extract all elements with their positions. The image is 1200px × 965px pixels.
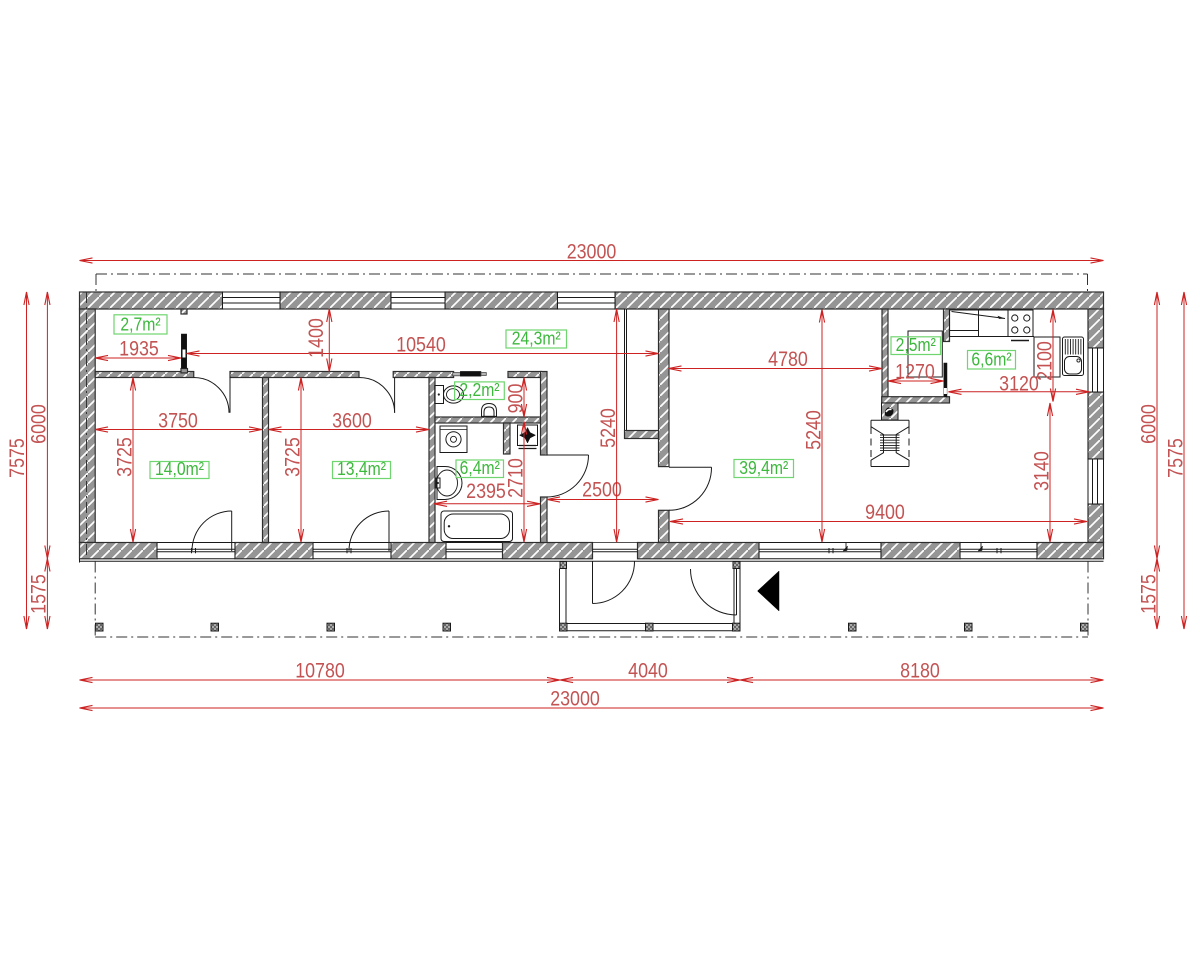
svg-text:23000: 23000 xyxy=(567,240,617,264)
svg-text:6000: 6000 xyxy=(1137,404,1161,444)
svg-text:6,4m²: 6,4m² xyxy=(460,457,500,479)
svg-text:3140: 3140 xyxy=(1030,451,1054,491)
svg-text:4780: 4780 xyxy=(768,348,808,372)
svg-text:13,4m²: 13,4m² xyxy=(337,458,386,480)
svg-text:8180: 8180 xyxy=(900,659,940,683)
svg-text:3725: 3725 xyxy=(113,437,137,477)
svg-text:6,6m²: 6,6m² xyxy=(971,348,1011,370)
svg-text:4040: 4040 xyxy=(628,659,668,683)
svg-text:3725: 3725 xyxy=(281,437,305,477)
svg-text:2,2m²: 2,2m² xyxy=(459,379,499,401)
svg-text:5240: 5240 xyxy=(597,408,621,448)
svg-text:6000: 6000 xyxy=(27,404,51,444)
svg-text:1935: 1935 xyxy=(119,337,159,361)
svg-text:2,7m²: 2,7m² xyxy=(120,313,160,335)
svg-text:2,5m²: 2,5m² xyxy=(896,334,936,356)
svg-text:7575: 7575 xyxy=(1164,438,1188,478)
svg-text:14,0m²: 14,0m² xyxy=(155,458,204,480)
svg-text:10780: 10780 xyxy=(295,659,345,683)
svg-text:23000: 23000 xyxy=(550,687,600,711)
svg-text:3600: 3600 xyxy=(332,409,372,433)
svg-text:10540: 10540 xyxy=(396,333,446,357)
svg-text:39,4m²: 39,4m² xyxy=(739,457,788,479)
svg-text:1270: 1270 xyxy=(895,360,935,384)
svg-text:5240: 5240 xyxy=(802,410,826,450)
svg-text:7575: 7575 xyxy=(6,438,30,478)
svg-text:2395: 2395 xyxy=(466,480,506,504)
svg-text:9400: 9400 xyxy=(865,501,905,525)
svg-text:1575: 1575 xyxy=(1137,574,1161,614)
svg-text:3750: 3750 xyxy=(158,409,198,433)
svg-text:1400: 1400 xyxy=(305,318,329,358)
svg-text:2710: 2710 xyxy=(504,458,528,498)
svg-text:24,3m²: 24,3m² xyxy=(512,327,561,349)
svg-text:1575: 1575 xyxy=(27,574,51,614)
svg-text:900: 900 xyxy=(504,384,528,414)
svg-text:2100: 2100 xyxy=(1033,341,1057,381)
svg-text:2500: 2500 xyxy=(582,478,622,502)
